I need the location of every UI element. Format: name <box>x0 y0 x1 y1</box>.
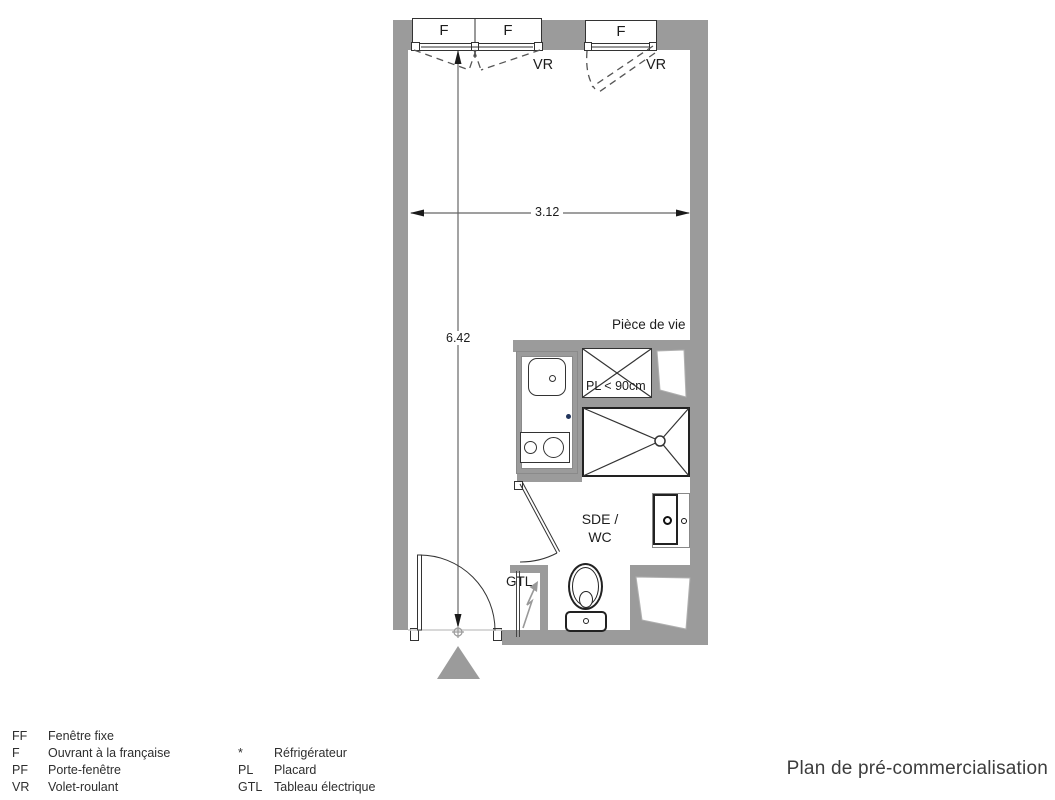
window-right-jamb-right <box>649 42 657 51</box>
toilet-seat-detail <box>579 591 593 608</box>
toilet-button-icon <box>583 618 589 624</box>
washbasin-tap-icon <box>681 518 687 524</box>
shower-tray <box>582 407 690 477</box>
window-right-sill <box>585 43 657 51</box>
legend-row-f: FOuvrant à la française <box>12 746 170 760</box>
window-left-pane2-label: F <box>496 22 520 39</box>
entry-door <box>418 555 496 631</box>
burner-small-icon <box>524 441 537 454</box>
entry-door-jamb-left <box>410 628 419 641</box>
wall-left <box>393 20 408 630</box>
legend-row-vr: VRVolet-roulant <box>12 780 118 794</box>
legend-label: Volet-roulant <box>48 780 118 794</box>
bathroom-door-jamb <box>514 481 523 490</box>
wall-right <box>690 20 708 645</box>
kitchen-sink <box>528 358 566 396</box>
sink-drain-icon <box>549 375 556 382</box>
closet-label: PL < 90cm <box>586 379 646 393</box>
gtl-niche-cap <box>510 565 548 573</box>
legend-abbr: F <box>12 746 48 760</box>
entry-door-jamb-right <box>493 628 502 641</box>
legend-row-pf: PFPorte-fenêtre <box>12 763 121 777</box>
window-left-jamb-right <box>534 42 543 51</box>
legend-row-gtl: GTLTableau électrique <box>238 780 375 794</box>
legend-abbr: * <box>238 746 274 760</box>
shutter-left-label: VR <box>533 57 553 73</box>
floor-plan-page: F F F VR VR 3.12 6.42 Pièce de vie PL < … <box>0 0 1055 800</box>
legend-row-fridge: *Réfrigérateur <box>238 746 347 760</box>
legend-row-pl: PLPlacard <box>238 763 316 777</box>
window-left-jamb-left <box>411 42 420 51</box>
bathroom-door <box>520 483 560 562</box>
legend-label: Porte-fenêtre <box>48 763 121 777</box>
legend-abbr: PF <box>12 763 48 777</box>
window-right-jamb-left <box>584 42 592 51</box>
bathroom-label: SDE / WC <box>574 510 626 546</box>
window-right-pane-label: F <box>609 23 633 40</box>
gtl-label: GTL <box>506 574 532 589</box>
legend-abbr: PL <box>238 763 274 777</box>
shutter-right-label: VR <box>646 57 666 73</box>
wall-kitchen-bottom <box>517 473 579 482</box>
legend-label: Ouvrant à la française <box>48 746 170 760</box>
dimension-width-label: 3.12 <box>531 205 563 219</box>
legend-abbr: VR <box>12 780 48 794</box>
legend-abbr: FF <box>12 729 48 743</box>
legend-label: Fenêtre fixe <box>48 729 114 743</box>
duct-block-bottom <box>630 565 708 645</box>
entry-arrow-triangle <box>437 646 480 679</box>
legend-label: Placard <box>274 763 316 777</box>
burner-large-icon <box>543 437 564 458</box>
duct-block-top <box>650 340 692 406</box>
gtl-niche-side <box>540 573 548 630</box>
washbasin-drain-icon <box>663 516 672 525</box>
bathroom-label-line2: WC <box>574 528 626 546</box>
window-left-jamb-center <box>471 42 479 51</box>
threshold-target-icon <box>452 626 464 638</box>
page-title: Plan de pré-commercialisation <box>770 758 1048 780</box>
legend-abbr: GTL <box>238 780 274 794</box>
dimension-height-label: 6.42 <box>444 331 472 345</box>
window-left-pane1-label: F <box>432 22 456 39</box>
legend-label: Réfrigérateur <box>274 746 347 760</box>
living-room-label: Pièce de vie <box>612 317 686 332</box>
wall-above-shower <box>578 398 692 407</box>
legend-label: Tableau électrique <box>274 780 375 794</box>
refrigerator-marker <box>566 414 571 419</box>
legend-row-ff: FFFenêtre fixe <box>12 729 114 743</box>
bathroom-label-line1: SDE / <box>574 510 626 528</box>
